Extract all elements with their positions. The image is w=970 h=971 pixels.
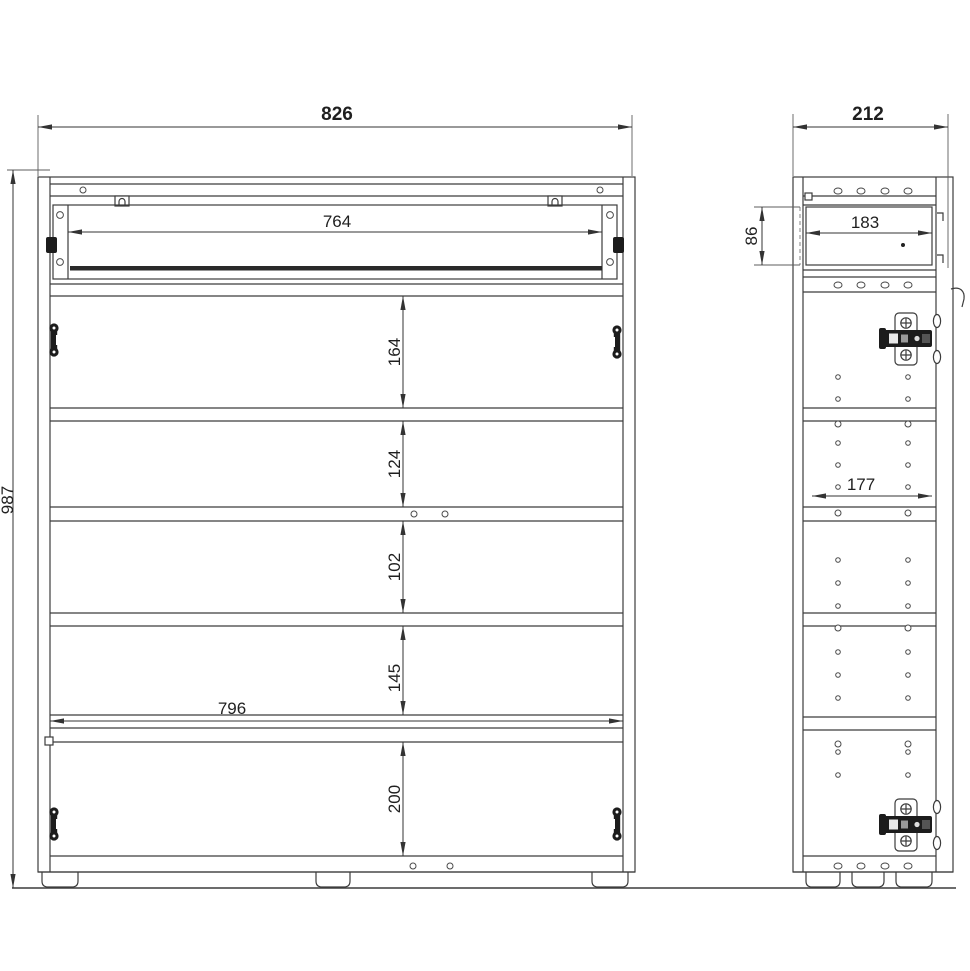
dim-overall-height: 987	[0, 486, 17, 514]
screw-hole	[411, 511, 417, 517]
screw-icon	[904, 188, 912, 194]
front-view	[38, 177, 635, 887]
drawer-screw	[57, 212, 64, 219]
foot	[42, 872, 78, 887]
screw-icon	[904, 282, 912, 288]
foot	[806, 872, 840, 887]
dim-drawer-height: 86	[742, 227, 761, 246]
screw-icon	[834, 282, 842, 288]
screw-icon	[857, 863, 865, 869]
side-view	[793, 177, 964, 887]
dim-drawer-depth: 183	[851, 213, 879, 232]
screw-icon	[857, 282, 865, 288]
front-carcass-outline	[38, 177, 635, 872]
drawer-bottom-edge	[70, 266, 602, 271]
cup-hinge-icon	[879, 313, 941, 365]
rail-clip-icon	[805, 193, 812, 200]
drawer-front-bracket-icon	[937, 255, 943, 263]
dim-section-5: 200	[385, 785, 404, 813]
screw-hole	[442, 511, 448, 517]
screw-icon	[881, 188, 889, 194]
side-carcass-outline	[793, 177, 953, 872]
screw-icon	[881, 282, 889, 288]
screw-icon	[904, 863, 912, 869]
dim-section-3: 102	[385, 553, 404, 581]
dim-interior-width: 796	[218, 699, 246, 718]
hinge-plate-icon	[609, 325, 622, 358]
drawer-slide-latch-icon	[46, 237, 57, 253]
front-bottom-panel	[38, 856, 635, 872]
drawer-slide-latch-icon	[613, 237, 624, 253]
cup-hinge-icon	[879, 799, 941, 851]
drawer-screw	[607, 212, 614, 219]
screw-icon	[857, 188, 865, 194]
foot	[592, 872, 628, 887]
dim-overall-depth: 212	[852, 104, 884, 125]
hinge-plate-icon	[49, 807, 62, 840]
dim-drawer-width: 764	[323, 212, 351, 231]
dim-interior-depth: 177	[847, 475, 875, 494]
cabinet-technical-drawing: 826 987 764 164 124 102 145 200 796 212 …	[0, 0, 970, 971]
screw-hole	[410, 863, 416, 869]
drawer-screw	[57, 259, 64, 266]
dim-section-1: 164	[385, 338, 404, 366]
screw-hole	[80, 187, 86, 193]
front-feet	[42, 872, 628, 887]
shelf-clip-icon	[45, 737, 53, 745]
side-shelves	[803, 408, 936, 747]
dim-section-4: 145	[385, 664, 404, 692]
technical-drawing-page: 826 987 764 164 124 102 145 200 796 212 …	[0, 0, 970, 971]
screw-icon	[834, 188, 842, 194]
foot	[852, 872, 884, 887]
screw-icon	[834, 863, 842, 869]
dim-overall-width: 826	[321, 104, 353, 125]
drawer-screw	[607, 259, 614, 266]
front-shelves	[45, 284, 623, 745]
drawer-pin	[901, 243, 905, 247]
screw-icon	[881, 863, 889, 869]
hinge-plate-icon	[609, 807, 622, 840]
screw-hole	[447, 863, 453, 869]
screw-hole	[597, 187, 603, 193]
foot	[896, 872, 932, 887]
side-feet	[806, 872, 932, 887]
hinge-plate-icon	[49, 323, 62, 356]
foot	[316, 872, 350, 887]
dim-section-2: 124	[385, 450, 404, 478]
drawer-front-bracket-icon	[937, 213, 943, 221]
